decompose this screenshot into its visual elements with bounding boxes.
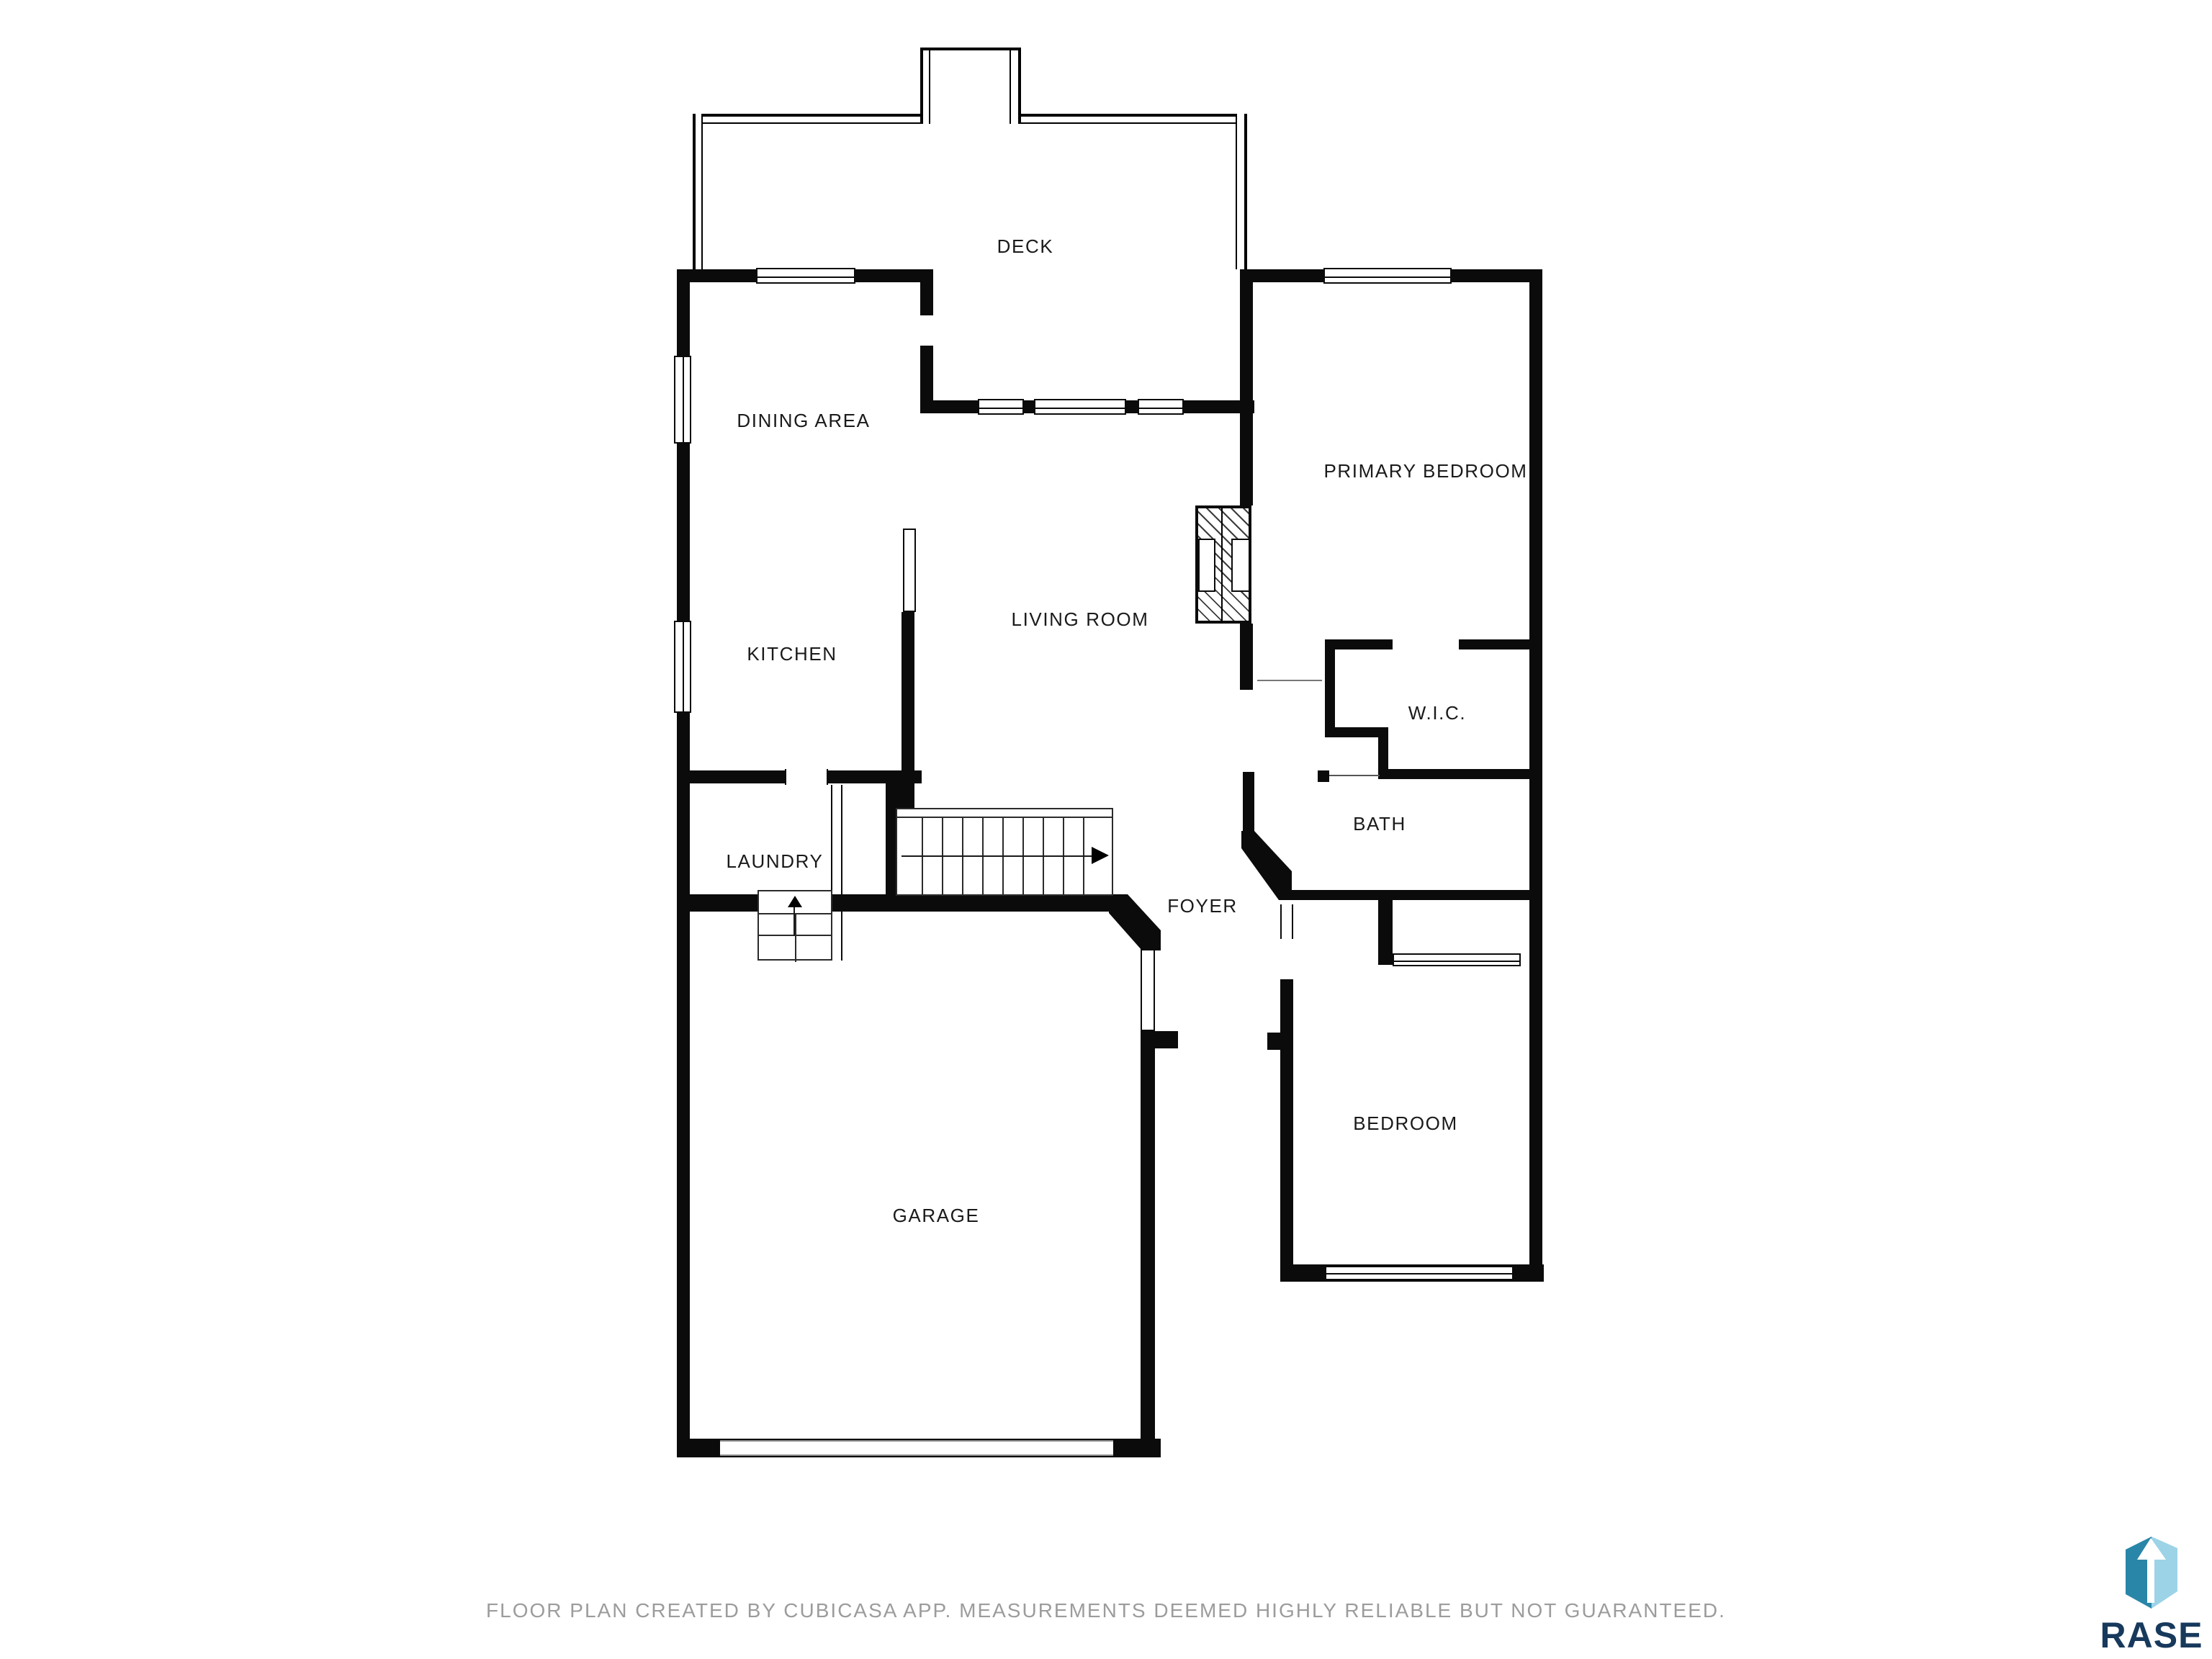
window-deck-pane-3 <box>1138 399 1184 415</box>
wall-deck-left-upper <box>920 269 933 314</box>
step-center-line <box>795 913 796 962</box>
laundry-door-opening <box>785 769 828 785</box>
room-label-kitchen: KITCHEN <box>747 644 837 663</box>
deck-rail-top-right <box>1018 114 1247 124</box>
wall-primary-wic-a <box>1325 639 1393 649</box>
window-primary-top <box>1323 268 1452 284</box>
deck-notch-outline <box>920 48 1021 124</box>
fireplace-box-left <box>1198 539 1215 592</box>
bedroom-door-opening <box>1280 904 1293 939</box>
entry-steps-direction-line <box>793 907 795 936</box>
window-dining-left <box>674 356 691 444</box>
deck-notch-inner-line-right <box>1010 50 1011 124</box>
stair-edge-line <box>897 817 1112 818</box>
footer-disclaimer: FLOOR PLAN CREATED BY CUBICASA APP. MEAS… <box>0 1599 2212 1622</box>
laundry-passage-lower <box>831 912 842 961</box>
window-dining-top <box>756 268 855 284</box>
fireplace-center-line <box>1221 505 1223 624</box>
deck-notch-inner-line-left <box>929 50 930 124</box>
wall-left-outer <box>677 269 690 1457</box>
wall-foyer-stub-left <box>1141 1031 1178 1048</box>
wall-deck-sill-b <box>1024 400 1034 413</box>
bath-door-line <box>1329 775 1380 776</box>
room-label-laundry: LAUNDRY <box>727 852 824 871</box>
fireplace-box-right <box>1231 539 1250 592</box>
window-deck-pane-1 <box>978 399 1024 415</box>
wall-deck-sill-c <box>1126 400 1138 413</box>
cube-up-arrow-icon <box>2118 1532 2185 1613</box>
brand-logo: RASE <box>2085 1532 2212 1658</box>
foyer-front-door-opening <box>1141 943 1155 1030</box>
wall-fireplace-stub <box>1240 624 1253 690</box>
room-label-bath: BATH <box>1353 814 1406 833</box>
page: DECK DINING AREA PRIMARY BEDROOM LIVING … <box>0 0 2212 1659</box>
main-staircase <box>896 808 1113 896</box>
deck-rail-right <box>1236 114 1247 269</box>
wall-primary-wic-b <box>1459 639 1529 649</box>
kitchen-counter-rail <box>903 529 916 612</box>
wall-deck-sill-a <box>920 400 978 413</box>
room-label-dining-area: DINING AREA <box>737 411 870 430</box>
garage-door-opening <box>720 1440 1113 1456</box>
wall-kitchen-living-divider <box>902 612 914 772</box>
window-bedroom-bottom <box>1325 1266 1514 1280</box>
hall-threshold-line <box>1257 680 1322 681</box>
wall-stairs-left <box>886 815 896 902</box>
floor-plan: DECK DINING AREA PRIMARY BEDROOM LIVING … <box>0 0 2212 1659</box>
room-label-bedroom: BEDROOM <box>1353 1114 1458 1133</box>
room-label-garage: GARAGE <box>893 1206 980 1225</box>
window-kitchen-left <box>674 621 691 713</box>
wall-primary-left <box>1240 282 1253 505</box>
wall-foyer-stub-right <box>1267 1033 1282 1050</box>
right-arrow-icon <box>1092 847 1109 864</box>
wall-bedroom-left <box>1280 979 1293 1282</box>
room-label-primary-bedroom: PRIMARY BEDROOM <box>1323 462 1527 480</box>
window-deck-pane-2 <box>1034 399 1126 415</box>
room-label-deck: DECK <box>997 237 1054 256</box>
bedroom-closet-outline <box>1393 953 1521 966</box>
wic-door-opening <box>1393 638 1459 651</box>
wall-bedroom-closet-stub <box>1378 900 1393 965</box>
laundry-passage-upper <box>831 785 842 894</box>
deck-rail-left <box>693 114 703 269</box>
stairs-direction-line <box>902 855 1092 857</box>
wall-bath-stub <box>1318 770 1329 782</box>
wall-garage-top <box>677 894 1118 912</box>
room-label-living-room: LIVING ROOM <box>1012 610 1149 629</box>
brand-name: RASE <box>2085 1616 2212 1658</box>
wall-bath-left <box>1243 772 1254 832</box>
deck-door-opening <box>920 314 933 347</box>
deck-rail-top-left <box>693 114 923 124</box>
room-label-foyer: FOYER <box>1167 896 1238 915</box>
wall-right-outer <box>1529 269 1542 1282</box>
up-arrow-icon <box>788 896 802 907</box>
wall-wic-left <box>1325 639 1335 730</box>
wall-wic-bottom <box>1378 769 1529 779</box>
wall-bath-bottom <box>1280 890 1529 900</box>
room-label-wic: W.I.C. <box>1408 703 1466 722</box>
